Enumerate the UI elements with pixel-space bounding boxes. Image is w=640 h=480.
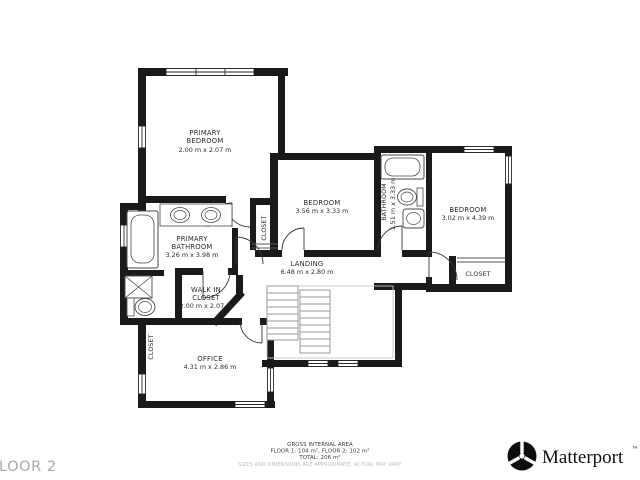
floor-label: FLOOR 2	[0, 459, 57, 475]
bathroom-middle-dims: 1.51 m x 3.33 m	[389, 178, 397, 231]
closet-right-label: CLOSET	[465, 271, 490, 278]
shower-icon	[125, 276, 152, 298]
footer-area-title: GROSS INTERNAL AREA	[287, 442, 353, 448]
walk-in-closet-label: WALK IN	[191, 286, 221, 294]
footer-total-area: TOTAL: 206 m²	[298, 454, 340, 461]
floor-plan-svg: PRIMARY BEDROOM 2.00 m x 2.07 m BEDROOM …	[0, 0, 640, 480]
brand-wordmark: Matterport	[542, 447, 624, 468]
walk-in-closet-label: CLOSET	[192, 294, 220, 302]
bedroom-middle-dims: 3.56 m x 3.33 m	[296, 207, 349, 215]
primary-bathroom-label: BATHROOM	[172, 243, 213, 251]
sink-basin-icon	[205, 210, 217, 219]
bathtub-basin-icon	[385, 158, 420, 176]
doors-group	[203, 203, 505, 343]
door-arc-office	[240, 321, 262, 343]
primary-bathroom-label: PRIMARY	[176, 235, 208, 243]
closet-hall-label: CLOSET	[261, 215, 268, 240]
sink-basin-icon	[174, 210, 186, 219]
floorplan-page: PRIMARY BEDROOM 2.00 m x 2.07 m BEDROOM …	[0, 0, 640, 480]
toilet-icon	[127, 298, 155, 316]
sink-icon	[403, 209, 424, 228]
footer-floor-areas: FLOOR 1: 104 m², FLOOR 2: 102 m²	[270, 448, 369, 455]
brand-trademark: ™	[632, 446, 638, 452]
primary-bedroom-label: PRIMARY	[189, 129, 221, 137]
closet-office-label: CLOSET	[148, 334, 155, 359]
stair-flight-left	[267, 286, 298, 340]
walk-in-closet-dims: 2.00 m x 2.07 m	[180, 302, 233, 310]
landing-label: LANDING	[291, 260, 324, 268]
bedroom-right-label: BEDROOM	[450, 206, 487, 214]
stair-flight-right	[300, 290, 330, 353]
stairs-group	[267, 286, 393, 358]
bathtub-basin-icon	[131, 215, 154, 263]
office-dims: 4.31 m x 2.86 m	[184, 363, 237, 371]
landing-dims: 6.48 m x 2.80 m	[281, 268, 334, 276]
bathroom-middle-label: BATHROOM	[381, 183, 388, 220]
primary-bedroom-label: BEDROOM	[187, 137, 224, 145]
primary-bedroom-dims: 2.00 m x 2.07 m	[179, 146, 232, 154]
door-arc-bedroom-middle	[282, 228, 304, 250]
bedroom-middle-label: BEDROOM	[304, 199, 341, 207]
footer-group: GROSS INTERNAL AREA FLOOR 1: 104 m², FLO…	[238, 442, 402, 468]
toilet-icon	[398, 188, 424, 206]
brand-group: Matterport ™	[508, 441, 639, 471]
footer-disclaimer: SIZES AND DIMENSIONS ARE APPROXIMATE, AC…	[238, 462, 402, 468]
office-label: OFFICE	[197, 355, 222, 363]
primary-bathroom-dims: 3.26 m x 3.98 m	[166, 251, 219, 259]
matterport-logo-icon	[508, 441, 537, 471]
bedroom-right-dims: 3.02 m x 4.39 m	[442, 214, 495, 222]
door-arc-hall-landing	[236, 237, 263, 264]
